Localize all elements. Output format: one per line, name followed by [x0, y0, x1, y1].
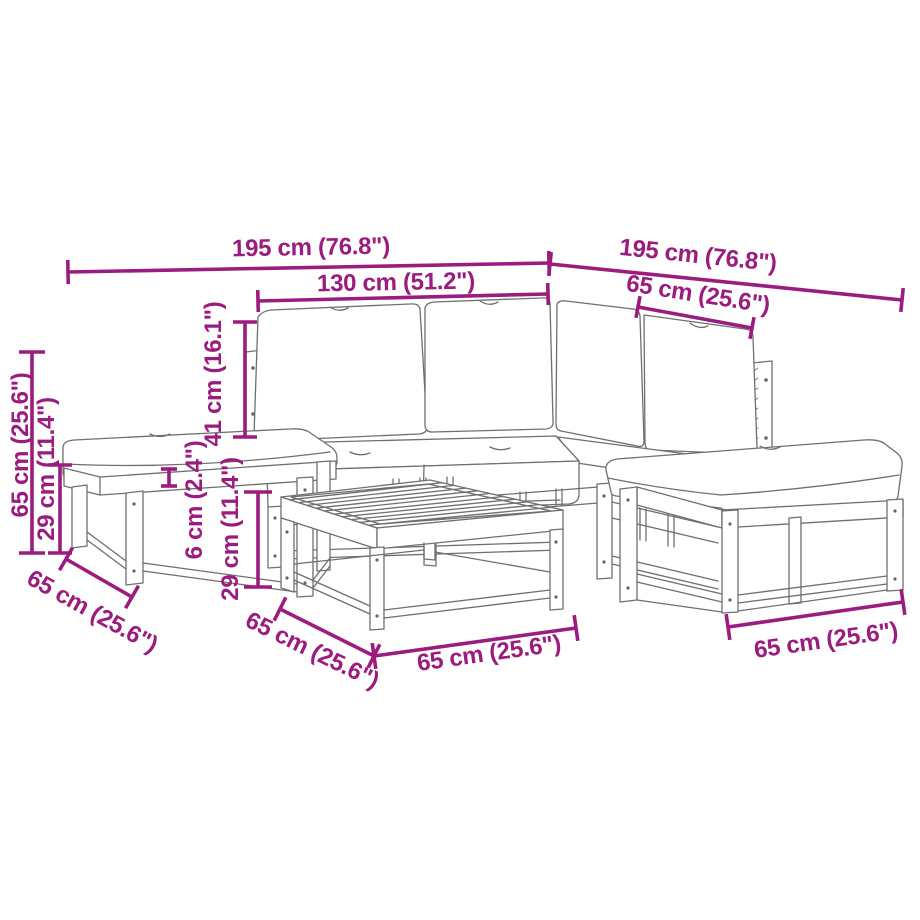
dimension-tick [274, 597, 286, 620]
dimension-tick [901, 288, 903, 312]
dimension-tick [901, 589, 905, 615]
back-cushions [254, 298, 757, 454]
dimension-table-width [372, 615, 578, 669]
dimension-overall-height [19, 352, 45, 553]
dimension-stool-width-right [726, 589, 905, 640]
dimension-tick [726, 614, 730, 640]
dimension-tick [574, 615, 578, 641]
dimension-overall-width-right [549, 252, 903, 312]
dimension-line [728, 602, 903, 627]
dimension-overall-width-left [68, 251, 549, 284]
dimension-line [550, 264, 902, 300]
dimension-tick [258, 290, 259, 312]
dimension-tick [548, 283, 549, 305]
dimension-line [374, 628, 576, 656]
dimension-diagram: 195 cm (76.8")130 cm (51.2")195 cm (76.8… [0, 0, 920, 920]
furniture-line-art [0, 0, 920, 920]
dimension-table-depth [274, 597, 380, 667]
dimension-tick [549, 252, 551, 276]
dimension-line [68, 263, 549, 272]
dimension-tick [126, 586, 139, 609]
dimension-tick [372, 643, 376, 669]
dimension-line [280, 609, 374, 656]
dimension-line [66, 559, 132, 597]
